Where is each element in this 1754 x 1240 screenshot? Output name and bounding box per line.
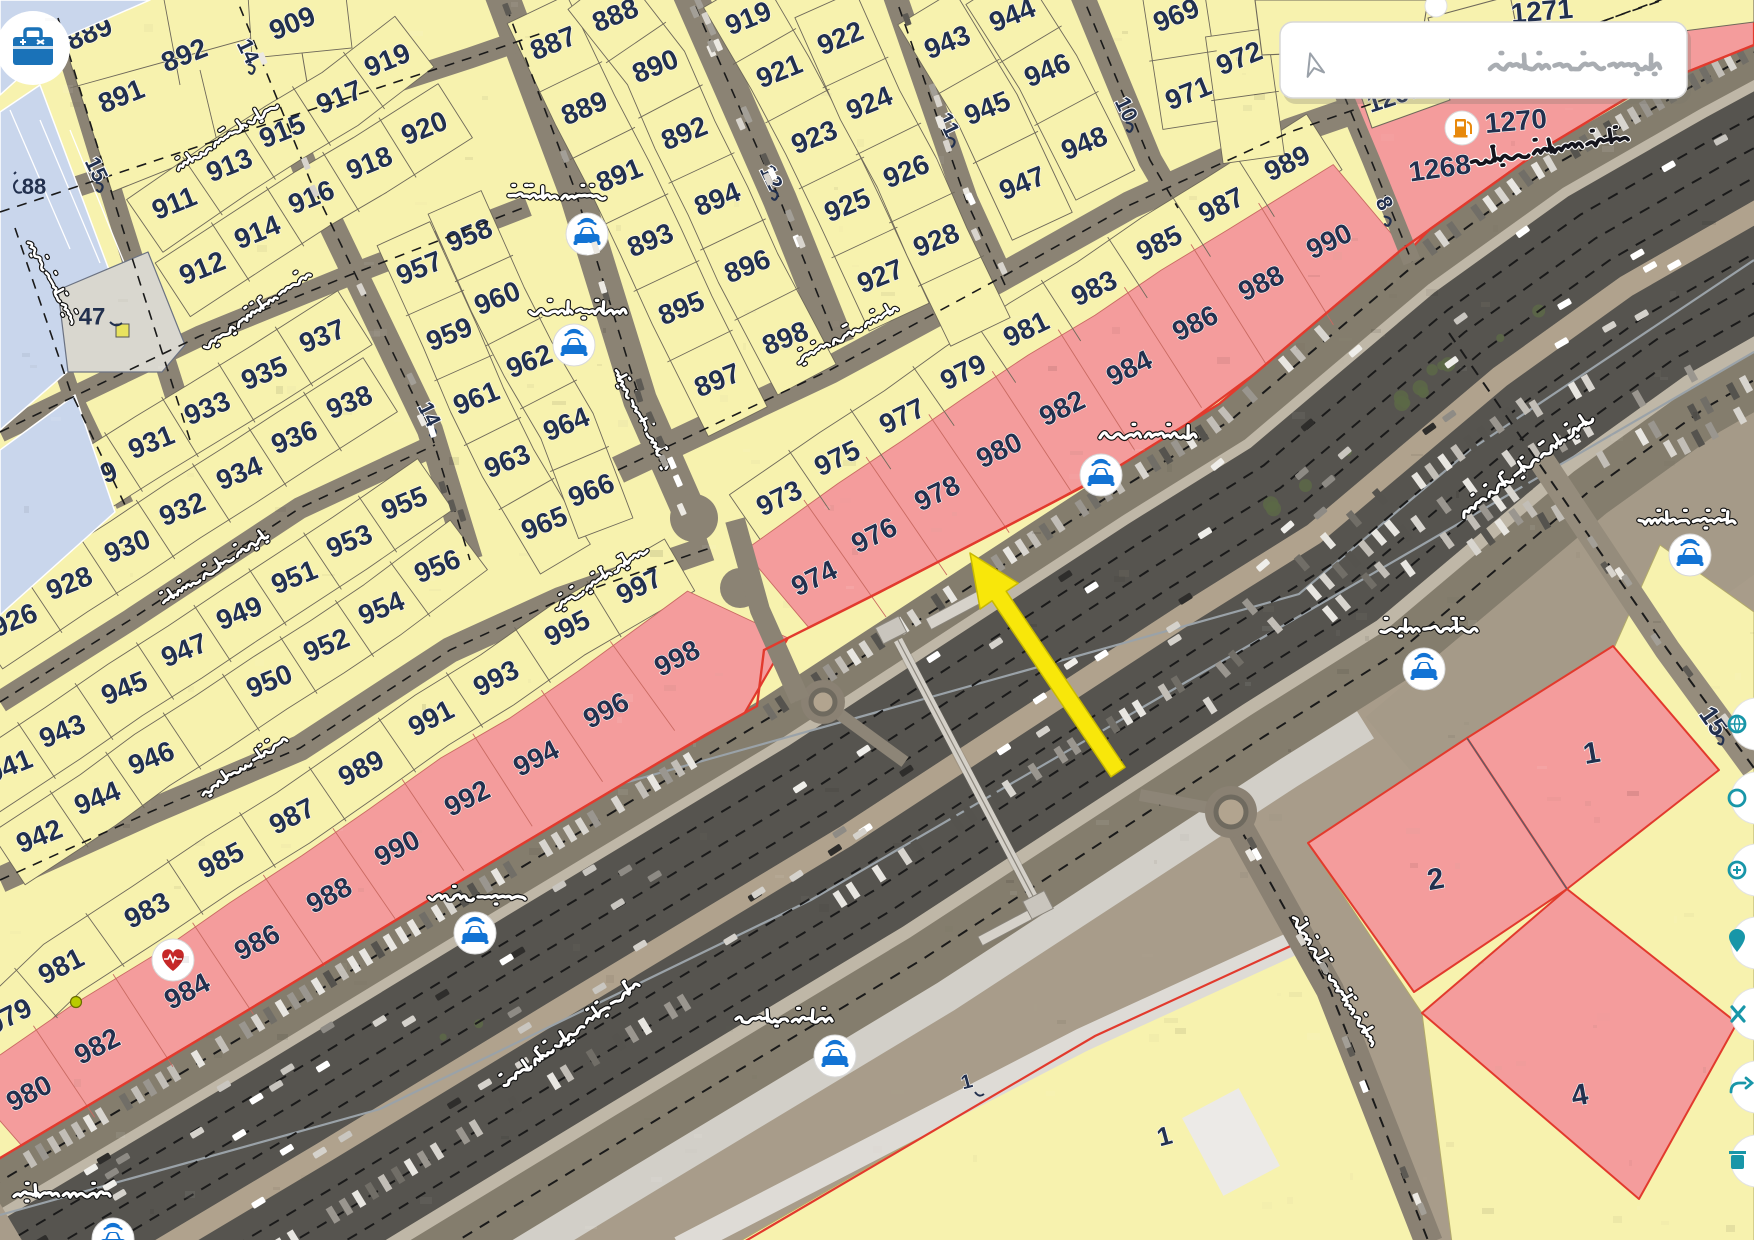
- svg-text:88: 88: [22, 174, 46, 199]
- svg-text:1270: 1270: [1483, 103, 1548, 139]
- svg-text:47: 47: [79, 303, 106, 330]
